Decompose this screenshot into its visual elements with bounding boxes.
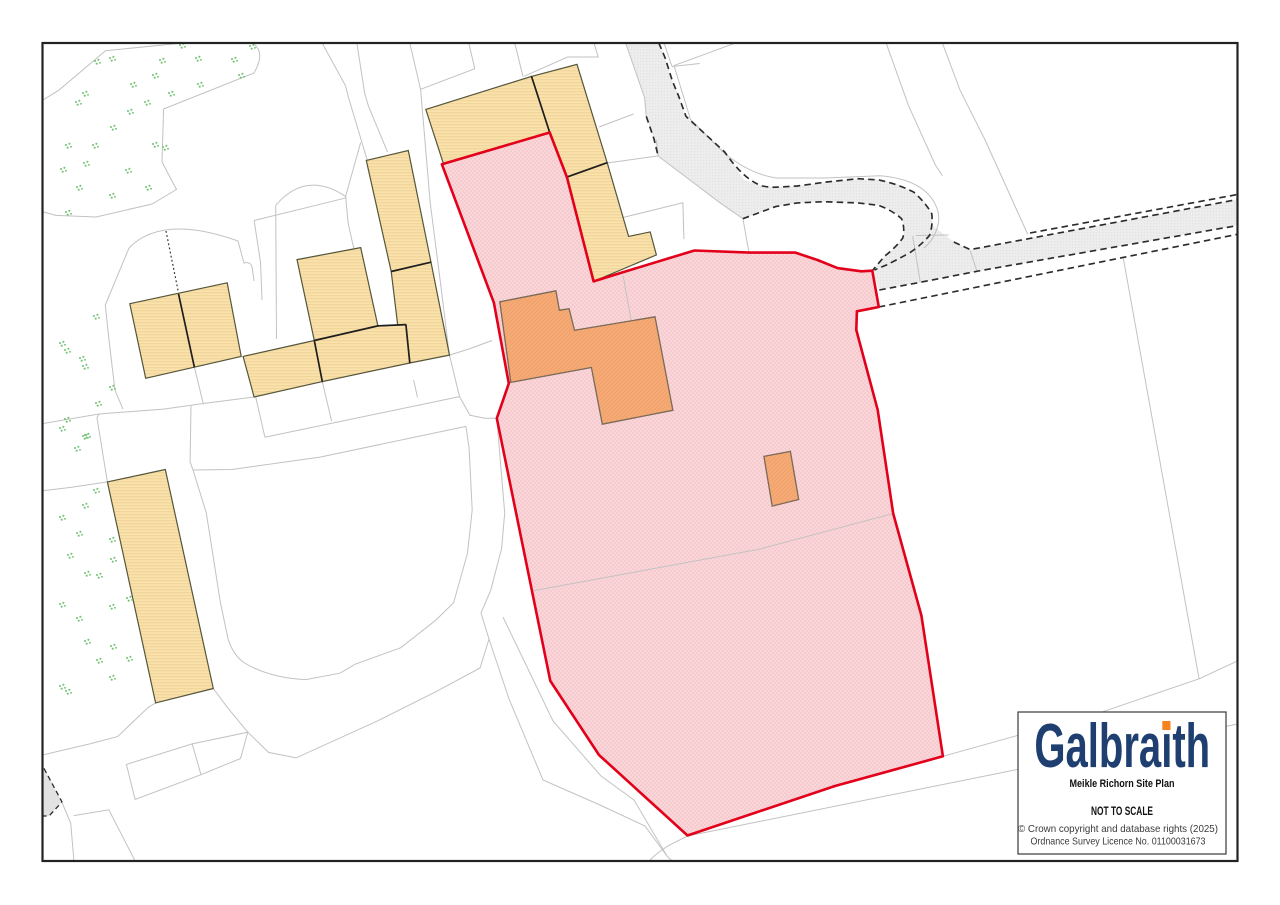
svg-text:Meikle Richorn Site Plan: Meikle Richorn Site Plan <box>1070 778 1175 790</box>
svg-text:© Crown copyright and database: © Crown copyright and database rights (2… <box>1018 823 1218 835</box>
svg-text:Ordnance Survey Licence No. 01: Ordnance Survey Licence No. 01100031673 <box>1031 836 1206 848</box>
svg-text:NOT TO SCALE: NOT TO SCALE <box>1091 806 1153 818</box>
svg-text:Galbraith: Galbraith <box>1034 712 1210 781</box>
